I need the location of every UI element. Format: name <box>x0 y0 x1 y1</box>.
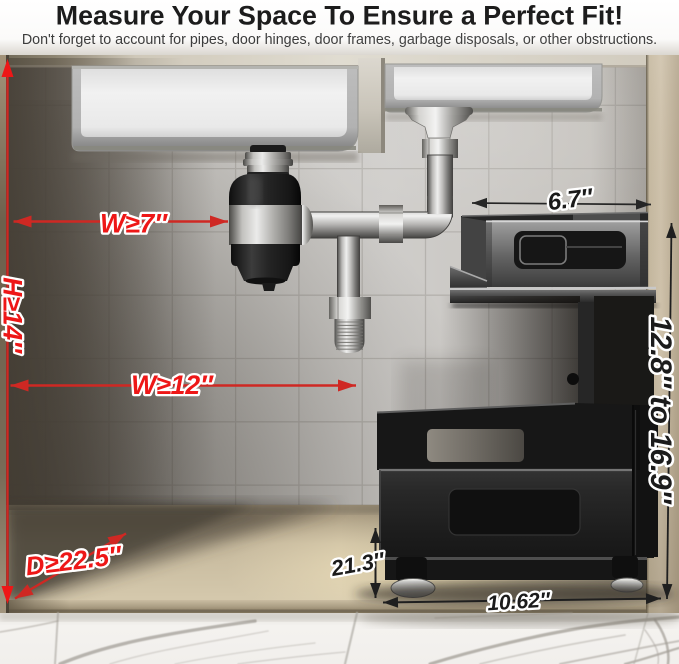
svg-text:W≥12″: W≥12″ <box>131 370 214 400</box>
svg-text:W≥7″: W≥7″ <box>100 209 168 239</box>
svg-text:10.62″: 10.62″ <box>487 589 552 616</box>
svg-text:12.8″ to 16.9″: 12.8″ to 16.9″ <box>644 316 677 505</box>
svg-text:H≥14″: H≥14″ <box>0 277 28 354</box>
svg-text:6.7″: 6.7″ <box>546 184 595 216</box>
